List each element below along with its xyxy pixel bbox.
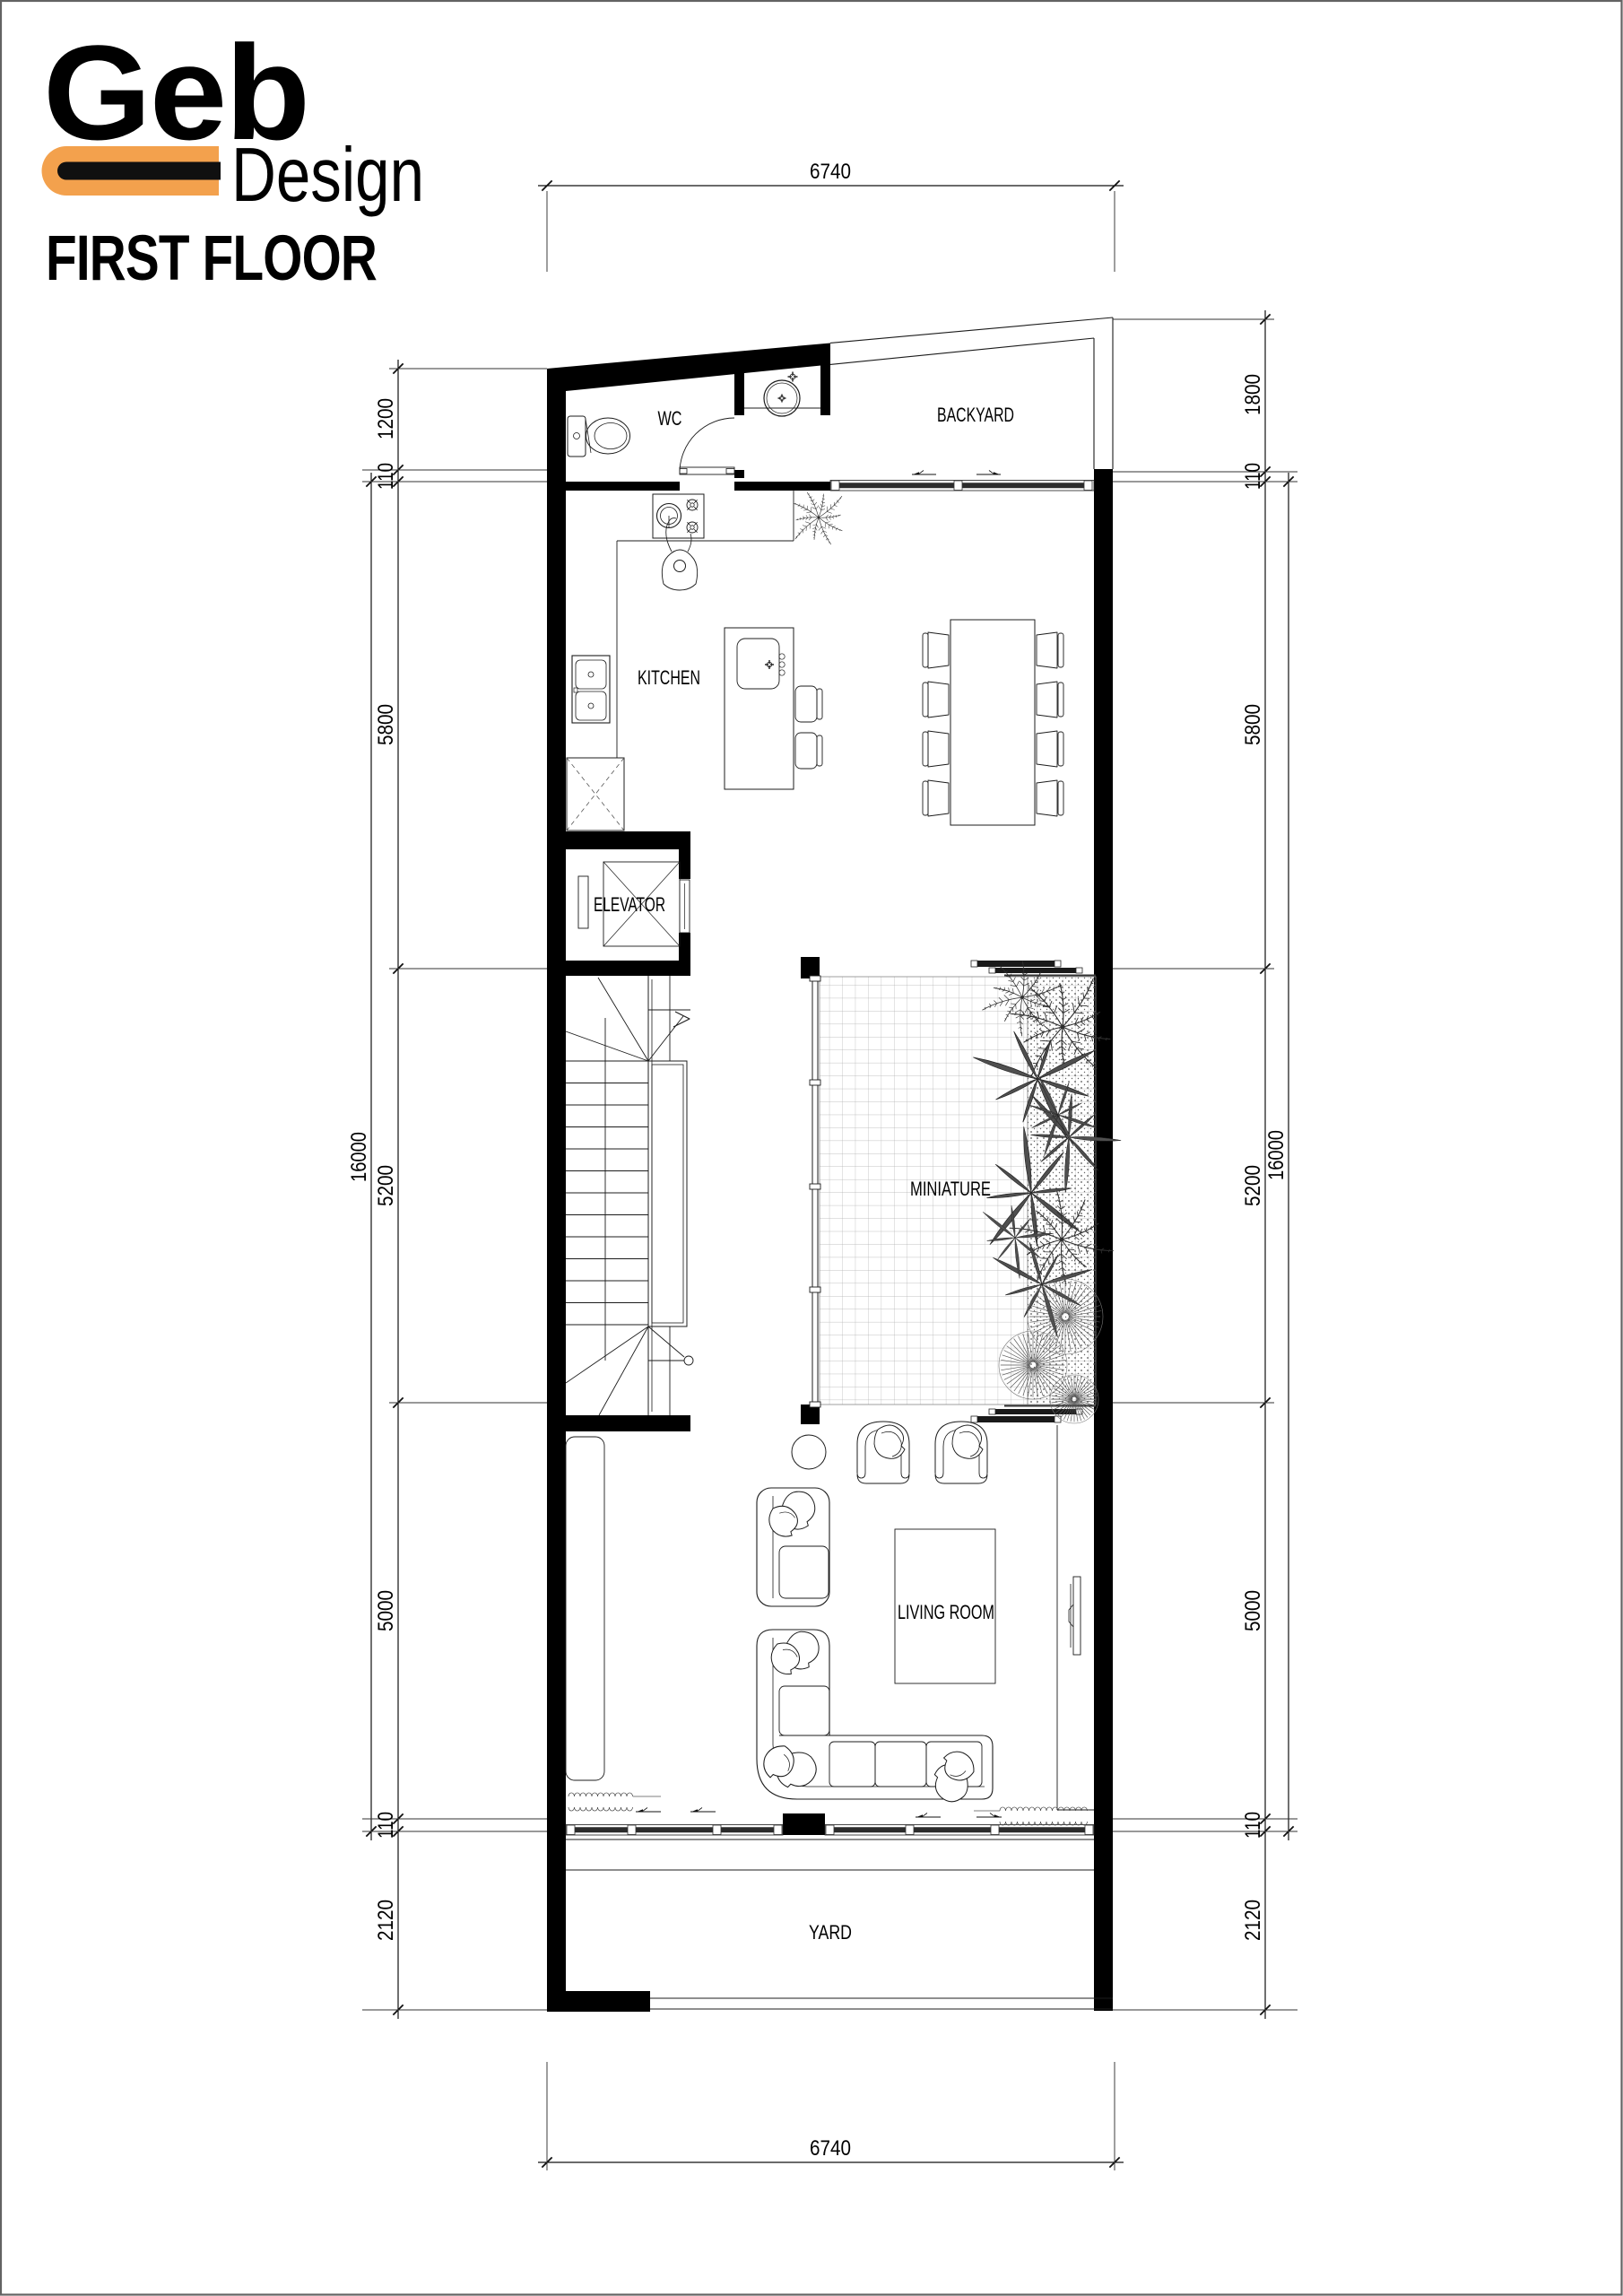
svg-text:5000: 5000: [374, 1590, 398, 1631]
svg-text:1200: 1200: [374, 398, 398, 439]
svg-text:YARD: YARD: [809, 1921, 852, 1944]
svg-text:6740: 6740: [810, 2136, 851, 2161]
svg-text:KITCHEN: KITCHEN: [638, 666, 700, 689]
svg-text:LIVING ROOM: LIVING ROOM: [898, 1601, 994, 1623]
svg-text:WC: WC: [658, 407, 682, 430]
svg-text:5800: 5800: [374, 704, 398, 745]
svg-text:2120: 2120: [374, 1900, 398, 1941]
svg-text:5200: 5200: [1241, 1165, 1265, 1206]
svg-text:5000: 5000: [1241, 1590, 1265, 1631]
svg-text:16000: 16000: [1264, 1130, 1289, 1180]
svg-text:2120: 2120: [1241, 1900, 1265, 1941]
svg-text:BACKYARD: BACKYARD: [937, 404, 1014, 426]
svg-text:MINIATURE: MINIATURE: [910, 1178, 991, 1200]
svg-text:16000: 16000: [347, 1132, 371, 1182]
svg-text:110: 110: [374, 463, 398, 490]
svg-text:6740: 6740: [810, 160, 851, 184]
svg-text:1800: 1800: [1241, 374, 1265, 415]
svg-text:110: 110: [1241, 1812, 1265, 1839]
svg-text:110: 110: [1241, 463, 1265, 490]
svg-text:5800: 5800: [1241, 704, 1265, 745]
svg-text:5200: 5200: [374, 1165, 398, 1206]
svg-text:Design: Design: [231, 133, 424, 218]
svg-text:ELEVATOR: ELEVATOR: [594, 893, 665, 916]
svg-text:110: 110: [374, 1812, 398, 1839]
svg-text:FIRST FLOOR: FIRST FLOOR: [46, 223, 377, 294]
